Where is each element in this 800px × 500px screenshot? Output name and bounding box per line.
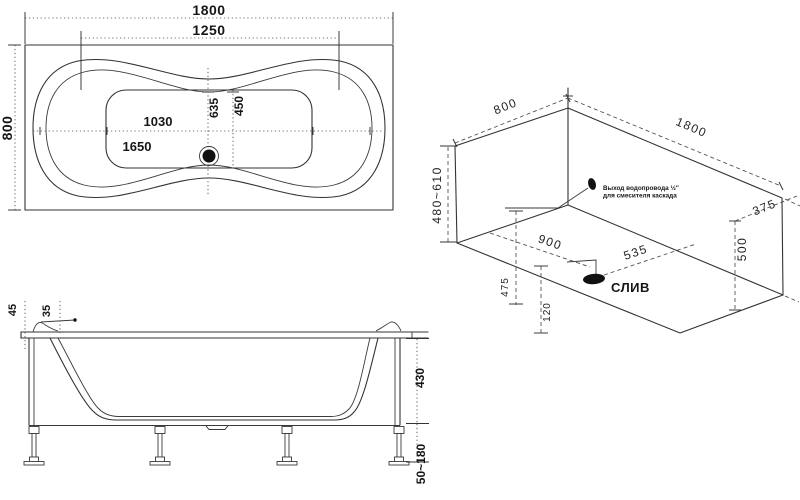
iso-dim-375: 375 — [735, 196, 797, 221]
dim-35-label: 35 — [41, 305, 53, 317]
iso-dim-500-label: 500 — [735, 237, 749, 262]
leg — [389, 427, 409, 466]
leg — [277, 427, 297, 466]
dim-800-top: 800 — [0, 45, 21, 210]
iso-dim-1800-label: 1800 — [674, 114, 710, 140]
outlet-note-line2: для смесителя каскада — [603, 193, 677, 200]
dim-1250: 1250 — [81, 22, 339, 90]
iso-dim-120: 120 — [534, 266, 553, 334]
dim-45: 45 — [7, 301, 25, 349]
tub-rim-inner-wave — [46, 70, 372, 187]
iso-dim-height: 480~610 — [430, 146, 457, 242]
iso-dim-800: 800 — [453, 94, 570, 147]
top-view: 1800 1250 800 — [0, 2, 393, 210]
iso-dim-375-label: 375 — [751, 196, 779, 218]
dim-leg-height: 50~180 — [406, 424, 429, 484]
iso-dim-535: 535 — [604, 242, 696, 275]
dim-45-label: 45 — [7, 304, 19, 316]
leg — [150, 427, 170, 466]
tub-outer-rect — [25, 45, 393, 210]
dim-1650-label: 1650 — [123, 139, 152, 154]
legs — [24, 427, 409, 466]
dim-430-label: 430 — [413, 368, 427, 388]
drain-notch — [206, 426, 228, 430]
outlet-dot — [587, 177, 597, 191]
dim-635-label: 635 — [207, 98, 221, 118]
iso-dim-1800: 1800 — [568, 98, 783, 190]
iso-view: 800 1800 480~610 375 500 — [430, 88, 800, 334]
iso-dim-535-label: 535 — [622, 242, 650, 263]
dim-430: 430 — [406, 339, 429, 424]
bathtub-technical-drawing: 1800 1250 800 — [0, 0, 800, 500]
leg — [24, 427, 44, 466]
tub-profile-outer — [50, 338, 378, 420]
side-view: 45 35 430 50~180 — [7, 301, 429, 484]
dim-1030-label: 1030 — [144, 114, 173, 129]
dim-1250-label: 1250 — [192, 22, 225, 38]
tub-rim-outer — [33, 59, 385, 197]
dim-800-top-label: 800 — [0, 116, 15, 141]
dim-450-label: 450 — [232, 96, 246, 116]
iso-dim-475-label: 475 — [500, 277, 511, 297]
rim-lip-left — [33, 322, 58, 332]
drain-top-view — [200, 147, 219, 166]
rim-lip-right — [376, 322, 401, 331]
iso-dim-120-label: 120 — [542, 302, 553, 322]
outlet-note-line1: Выход водопровода ½″ — [603, 184, 679, 192]
iso-dim-900-label: 900 — [536, 232, 564, 253]
iso-dim-475: 475 — [500, 211, 523, 305]
top-view-centerlines — [33, 68, 383, 196]
dim-1800-label: 1800 — [192, 2, 225, 18]
drawing-svg: 1800 1250 800 — [0, 0, 800, 500]
tub-profile-inner — [58, 338, 370, 417]
iso-dim-500: 500 — [729, 221, 749, 310]
water-outlet: Выход водопровода ½″ для смесителя каска… — [505, 177, 679, 208]
drain-iso: СЛИВ — [567, 260, 650, 295]
drain-label: СЛИВ — [611, 280, 650, 295]
iso-dim-800-label: 800 — [492, 95, 520, 117]
iso-dim-height-label: 480~610 — [430, 166, 444, 224]
lip-leader-dot — [73, 318, 76, 321]
drain-dot — [583, 273, 606, 285]
dim-leg-height-label: 50~180 — [414, 443, 428, 484]
lip-leader-line — [41, 320, 75, 322]
